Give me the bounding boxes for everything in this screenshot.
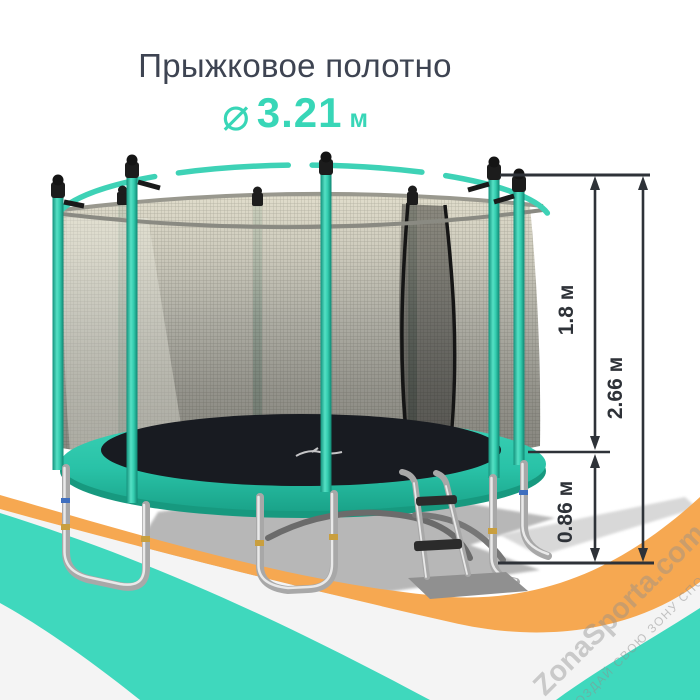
pole <box>319 152 333 493</box>
net-door-panel <box>399 204 453 452</box>
dimension-label-total-height: 2.66 м <box>604 357 627 419</box>
product-dimension-diagram: Прыжковое полотно ⌀ 3.21 м <box>0 0 700 700</box>
scene: 1.8 м 2.66 м 0.86 м ZonaSporta.com СОЗДА… <box>0 0 700 700</box>
dimension-label-frame-height: 0.86 м <box>554 481 577 543</box>
dimension-label-net-height: 1.8 м <box>555 285 578 336</box>
